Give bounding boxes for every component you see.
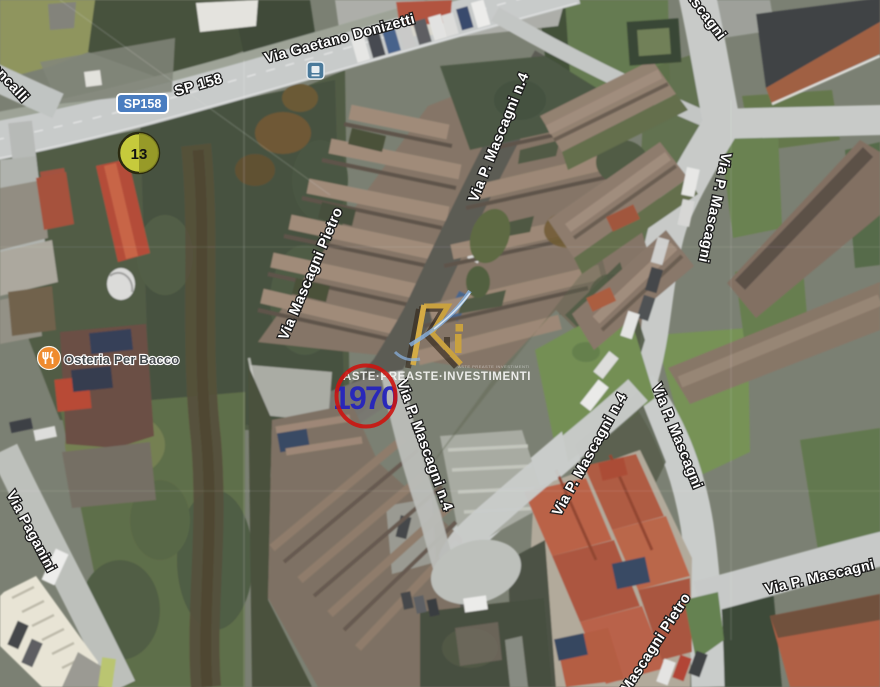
svg-text:13: 13	[131, 146, 148, 163]
svg-text:1970: 1970	[333, 380, 398, 416]
svg-text:Osteria Per Bacco: Osteria Per Bacco	[64, 352, 179, 367]
svg-text:ASTE PREASTE INVESTIMENTI: ASTE PREASTE INVESTIMENTI	[458, 364, 530, 369]
svg-text:SP158: SP158	[124, 97, 162, 111]
